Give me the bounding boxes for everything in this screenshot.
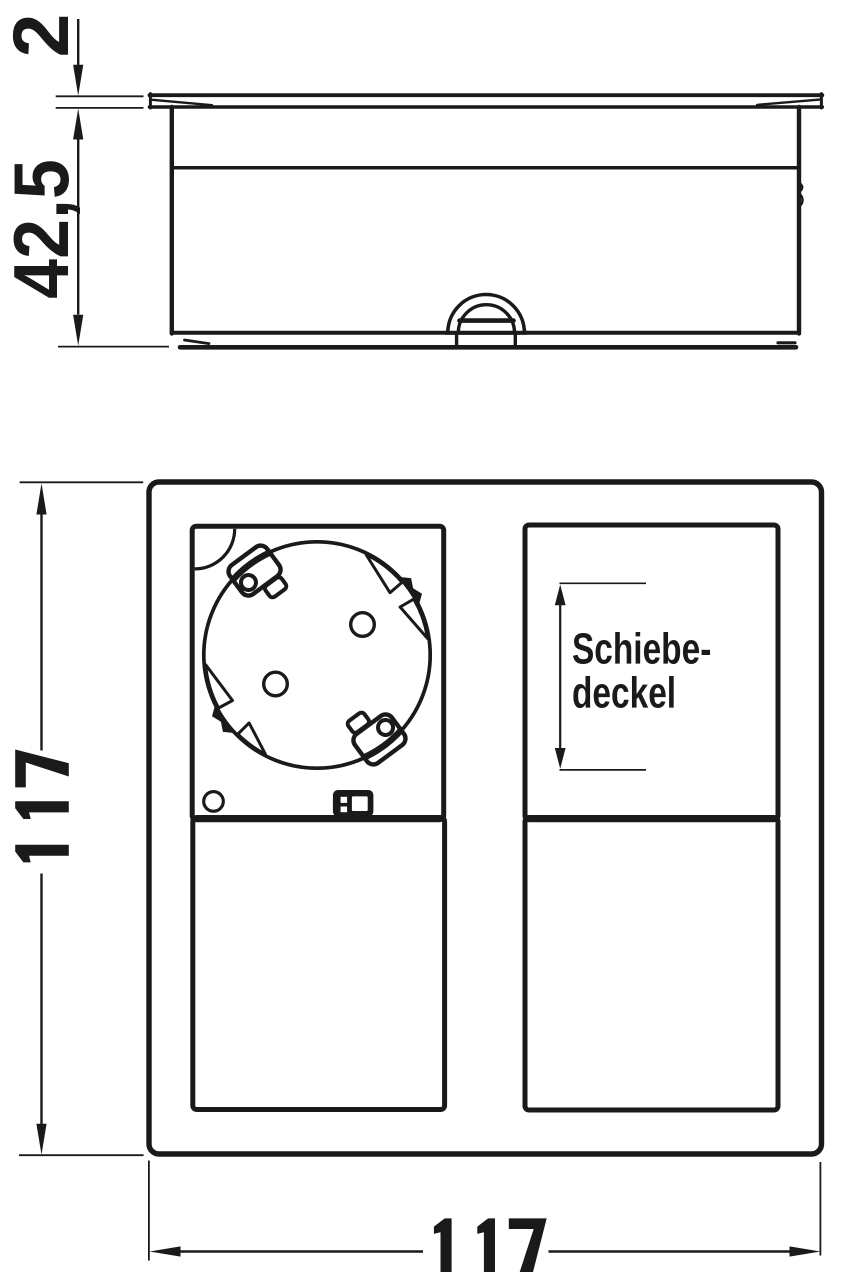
svg-text:2: 2 [0,14,85,58]
svg-text:deckel: deckel [572,669,676,717]
svg-text:42,5: 42,5 [0,159,85,299]
svg-text:Schiebe-: Schiebe- [572,625,711,673]
